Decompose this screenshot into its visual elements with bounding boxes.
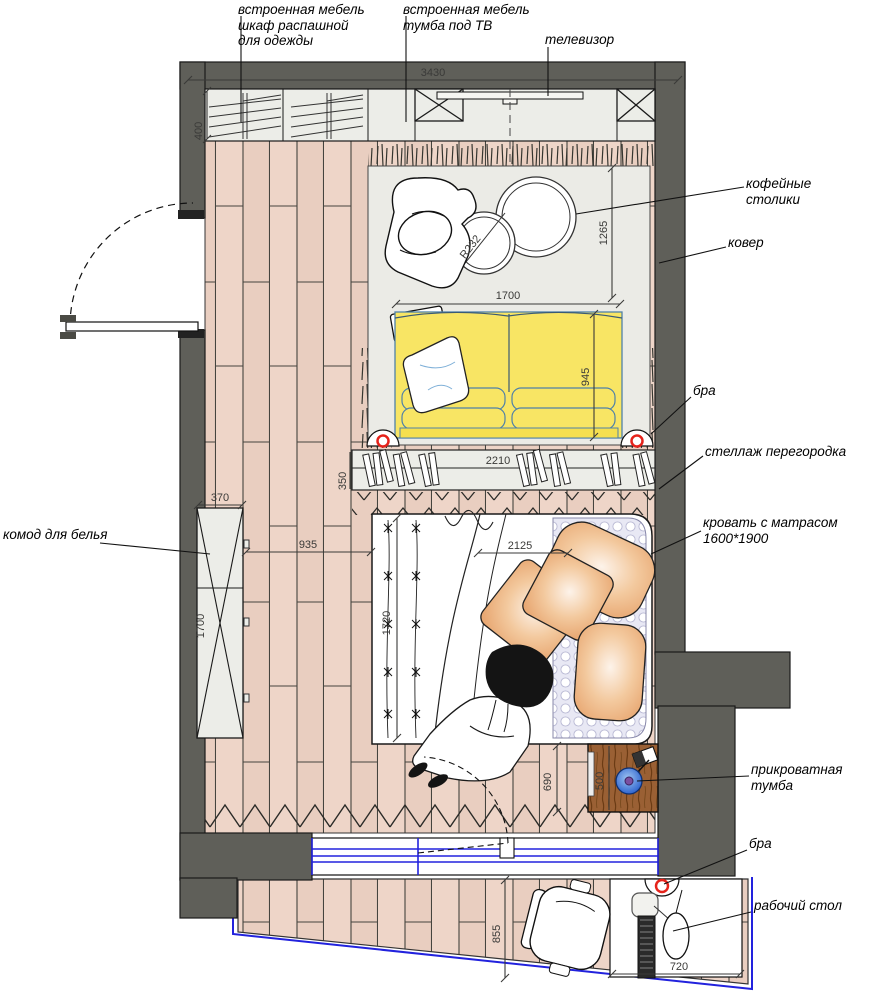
dim-wardrobe-depth: 400 [193, 122, 205, 140]
label-shelving: стеллаж перегородка [705, 444, 846, 460]
monitor [663, 913, 689, 959]
dim-desk-width: 720 [670, 961, 688, 973]
label-bedside-table: прикроватная тумба [751, 762, 875, 793]
label-tv-stand: встроенная мебель тумба под ТВ [403, 2, 530, 33]
dim-bed-gap: 935 [299, 539, 317, 551]
dim-top-width: 3430 [421, 67, 445, 79]
balcony-door-jamb [500, 838, 514, 858]
curtain-top [368, 143, 655, 166]
dim-bed-width: 1720 [381, 611, 393, 635]
label-wardrobe: встроенная мебель шкаф распашной для оде… [238, 2, 365, 49]
wall-right-step [655, 652, 790, 708]
dim-sofa-depth: 945 [580, 368, 592, 386]
label-sconce-sofa: бра [693, 383, 716, 399]
desk-sconce-lamp [656, 880, 668, 892]
dim-sofa-width: 1700 [496, 290, 520, 302]
dim-bed-length: 2125 [508, 540, 532, 552]
door-jambs [178, 210, 204, 338]
column-box-right [617, 89, 655, 121]
label-tv: телевизор [545, 32, 614, 48]
keyboard [638, 916, 655, 978]
desk-tray [632, 893, 658, 917]
dim-nightstand-gap: 690 [542, 773, 554, 791]
label-carpet: ковер [728, 235, 764, 251]
dim-nightstand-width: 500 [594, 772, 606, 790]
wall-bottom-corner [180, 878, 237, 918]
entry-door [60, 203, 198, 339]
door-swing-arc [70, 203, 193, 326]
pillow-lumbar [573, 622, 648, 723]
wall-bottom-left [180, 833, 312, 880]
dim-carpet-length: 1265 [598, 221, 610, 245]
label-dresser: комод для белья [3, 527, 107, 543]
builtin-row [205, 89, 655, 141]
dim-shelf-length: 2210 [486, 455, 510, 467]
dim-balcony-depth: 855 [491, 925, 503, 943]
label-sconce-desk: бра [749, 836, 772, 852]
wall-right-lower [658, 706, 735, 876]
floor-plan-page: 3430 400 1265 R232 1700 945 2210 350 370… [0, 0, 875, 1000]
parquet-zigzag-mid [352, 492, 655, 515]
dim-shelf-depth: 350 [337, 472, 349, 490]
dim-dresser-width: 370 [211, 492, 229, 504]
label-desk: рабочий стол [754, 898, 842, 914]
label-coffee-tables: кофейные столики [746, 176, 811, 207]
floor-plan-svg: 3430 400 1265 R232 1700 945 2210 350 370… [0, 0, 875, 1000]
label-bed: кровать с матрасом 1600*1900 [703, 515, 838, 546]
dim-dresser-length: 1700 [195, 614, 207, 638]
wall-right [655, 62, 685, 654]
door-leaf [66, 322, 198, 331]
